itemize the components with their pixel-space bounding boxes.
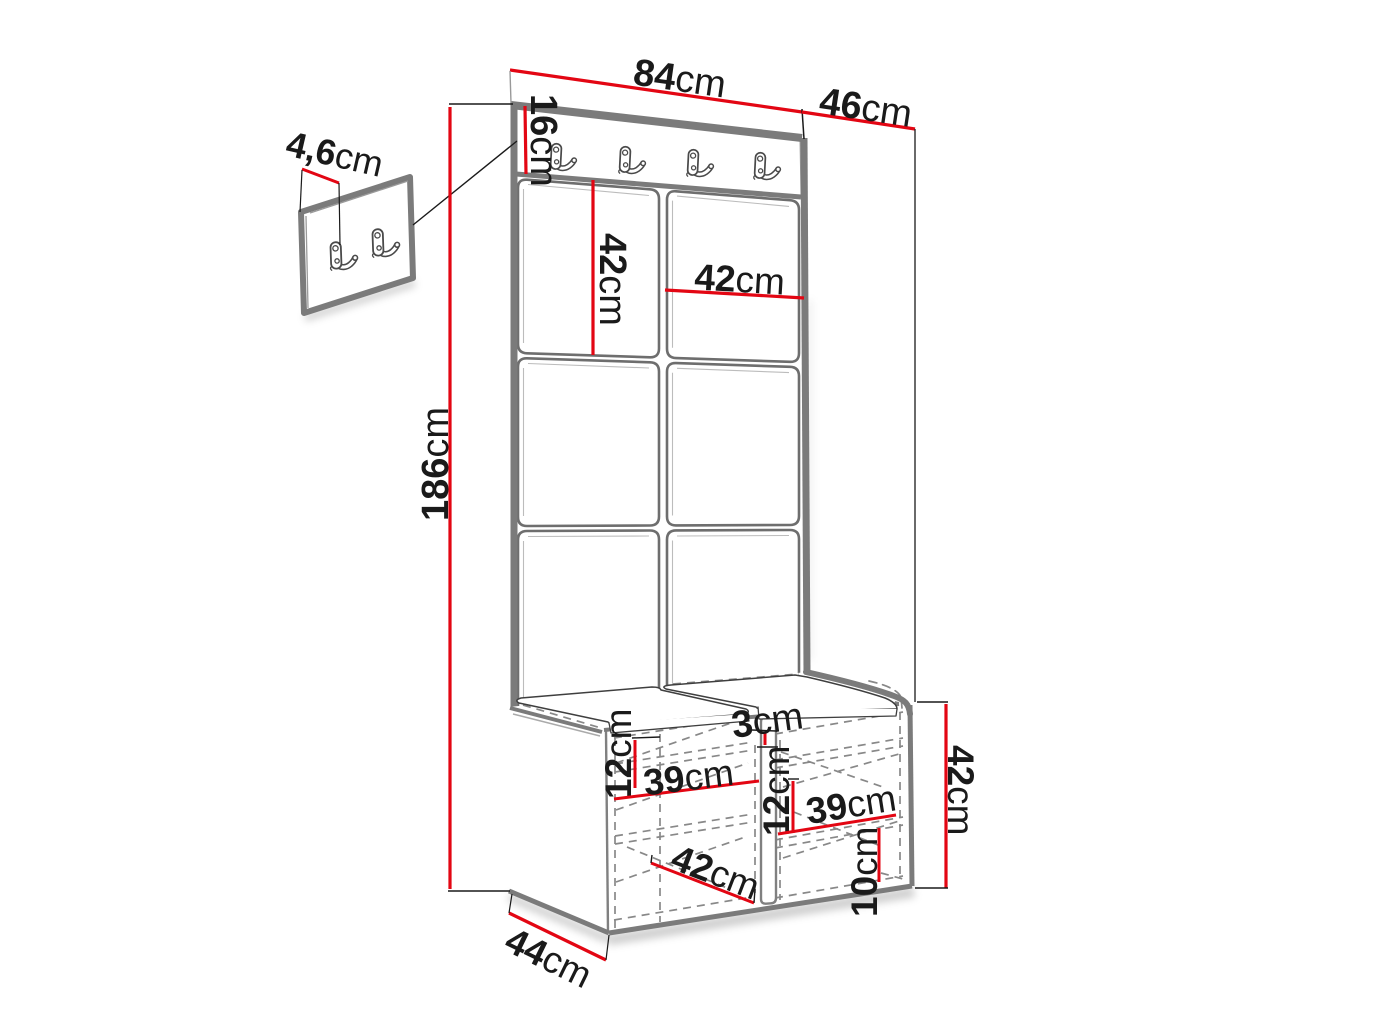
svg-text:10cm: 10cm: [844, 827, 885, 917]
svg-text:42cm: 42cm: [591, 233, 633, 326]
svg-text:16cm: 16cm: [522, 94, 564, 187]
svg-text:186cm: 186cm: [415, 407, 457, 521]
svg-text:12cm: 12cm: [756, 746, 797, 836]
svg-text:42cm: 42cm: [940, 745, 981, 835]
svg-text:12cm: 12cm: [598, 709, 639, 799]
svg-text:42cm: 42cm: [693, 256, 786, 302]
